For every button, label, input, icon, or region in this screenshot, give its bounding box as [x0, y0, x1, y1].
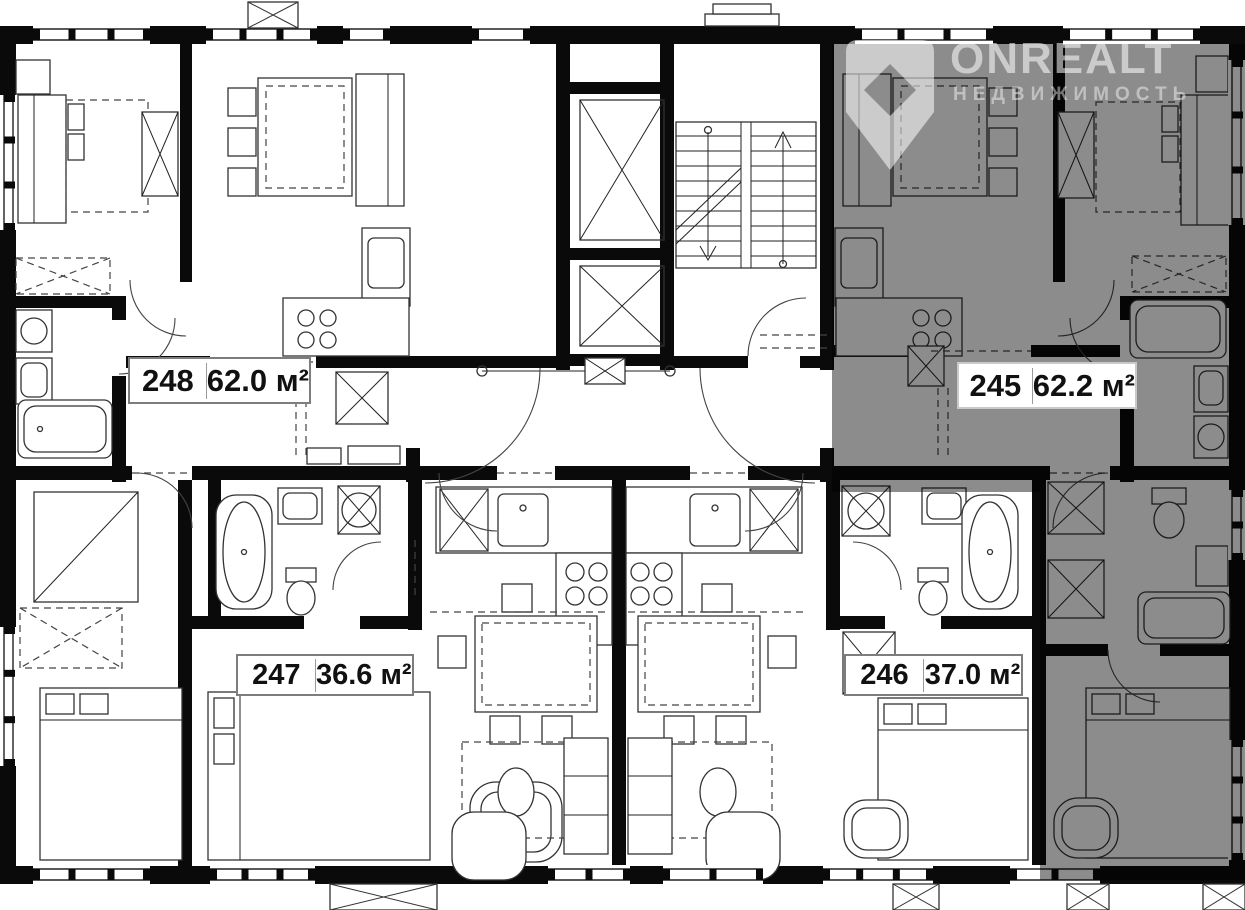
apartment-number: 246 — [846, 659, 924, 692]
closet-icon — [336, 372, 388, 424]
apartment-area: 62.0 м² — [207, 363, 309, 399]
bathroom-246 — [842, 486, 1018, 615]
apartment-area: 36.6 м² — [316, 659, 412, 692]
elevator-shaft-2 — [580, 266, 664, 346]
apartment-label-246[interactable]: 246 37.0 м² — [844, 654, 1023, 696]
bathroom-248 — [16, 258, 112, 458]
apartment-label-245[interactable]: 245 62.2 м² — [957, 362, 1137, 409]
apartment-number: 247 — [238, 659, 316, 692]
elevator-shaft-1 — [580, 100, 664, 240]
staircase — [676, 122, 816, 268]
elevator-core — [477, 100, 816, 384]
floor-plan-page: { "watermark": { "brand": "ONREALT", "su… — [0, 0, 1245, 910]
shower-icon — [842, 486, 890, 536]
bedroom-248-lower — [20, 492, 182, 860]
apartment-label-248[interactable]: 248 62.0 м² — [128, 357, 311, 404]
apartment-area: 62.2 м² — [1033, 368, 1135, 404]
roof-vent — [705, 4, 779, 26]
bathroom-247 — [216, 486, 380, 615]
apartment-area: 37.0 м² — [924, 659, 1021, 692]
shower-icon — [338, 486, 380, 534]
wardrobe-icon — [142, 112, 178, 196]
apartment-number: 248 — [130, 363, 207, 399]
kitchen-246 — [626, 487, 802, 880]
apartment-label-247[interactable]: 247 36.6 м² — [236, 654, 414, 696]
apartment-number: 245 — [959, 368, 1033, 404]
floor-plan-drawing — [0, 0, 1245, 910]
